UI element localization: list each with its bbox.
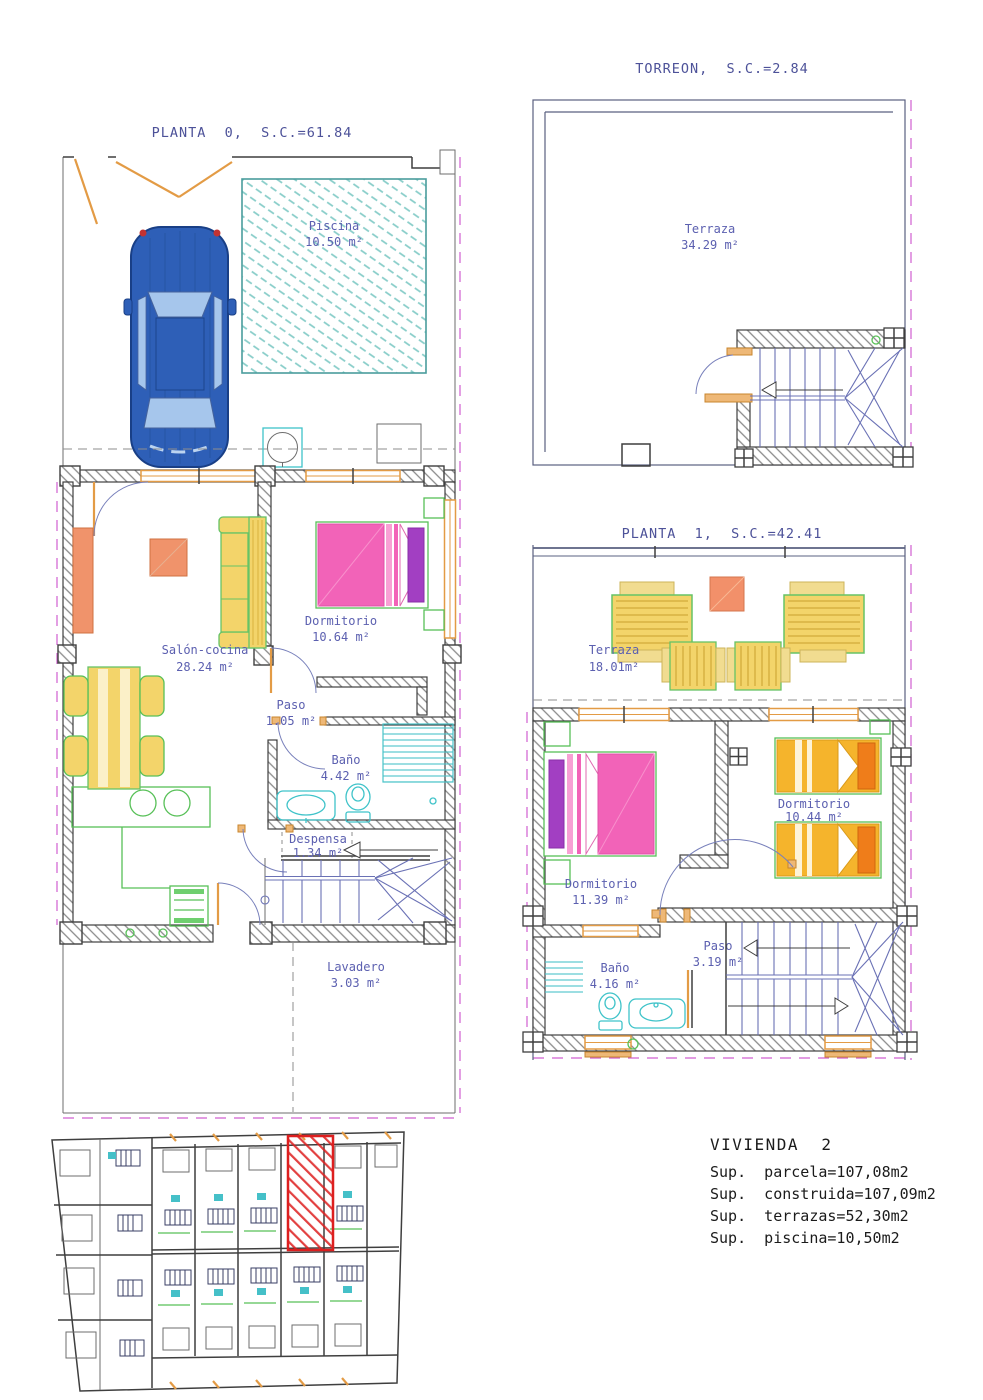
torreon-title: TORREON, S.C.=2.84 — [635, 61, 808, 77]
summary-line-parcela: Sup. parcela=107,08m2 — [710, 1163, 909, 1181]
summary-line-piscina: Sup. piscina=10,50m2 — [710, 1229, 900, 1247]
paso0-label: Paso — [277, 698, 306, 712]
dormitorio2-label: Dormitorio — [778, 797, 850, 811]
planta1-title: PLANTA 1, S.C.=42.41 — [622, 526, 823, 542]
paso0-area: 1.05 m² — [266, 714, 317, 728]
coffee-table — [150, 539, 187, 576]
terrace-chair-2 — [727, 642, 790, 690]
torreon-terraza-area: 34.29 m² — [681, 238, 739, 252]
planta1-single-bed-b — [775, 822, 881, 878]
dormitorio1-area: 11.39 m² — [572, 893, 630, 907]
swimming-pool — [242, 179, 426, 373]
summary-line-terrazas: Sup. terrazas=52,30m2 — [710, 1207, 909, 1225]
summary-title: VIVIENDA 2 — [710, 1135, 832, 1154]
dormitorio0-area: 10.64 m² — [312, 630, 370, 644]
despensa-area: 1.34 m² — [293, 846, 344, 860]
highlighted-unit-vivienda2 — [288, 1136, 333, 1250]
paso1-area: 3.19 m² — [693, 955, 744, 969]
sideboard — [73, 528, 93, 633]
terrace-chair-1 — [662, 642, 725, 690]
lavadero-label: Lavadero — [327, 960, 385, 974]
torreon-terraza-label: Terraza — [685, 222, 736, 236]
bano1-label: Baño — [601, 961, 630, 975]
dormitorio2-area: 10.44 m² — [785, 810, 843, 824]
car-top-view — [124, 227, 236, 467]
drawing-sheet: PLANTA 0, S.C.=61.84 — [0, 0, 983, 1400]
bano1-area: 4.16 m² — [590, 977, 641, 991]
piscina-area: 10.50 m² — [305, 235, 363, 249]
architectural-drawing: PLANTA 0, S.C.=61.84 — [0, 0, 983, 1400]
salon-area: 28.24 m² — [176, 660, 234, 674]
bano0-area: 4.42 m² — [321, 769, 372, 783]
summary-line-construida: Sup. construida=107,09m2 — [710, 1185, 936, 1203]
terraza1-area: 18.01m² — [589, 660, 640, 674]
lavadero-area: 3.03 m² — [331, 976, 382, 990]
dormitorio0-label: Dormitorio — [305, 614, 377, 628]
shower-lines — [545, 958, 583, 996]
shower — [383, 724, 453, 782]
terrace-table — [710, 577, 744, 611]
salon-label: Salón-cocina — [162, 643, 249, 657]
paso1-label: Paso — [704, 939, 733, 953]
despensa-label: Despensa — [289, 832, 347, 846]
terraza1-label: Terraza — [589, 643, 640, 657]
sofa — [219, 517, 266, 648]
planta0-title: PLANTA 0, S.C.=61.84 — [152, 125, 353, 141]
bano0-label: Baño — [332, 753, 361, 767]
dormitorio1-label: Dormitorio — [565, 877, 637, 891]
piscina-label: Piscina — [309, 219, 360, 233]
